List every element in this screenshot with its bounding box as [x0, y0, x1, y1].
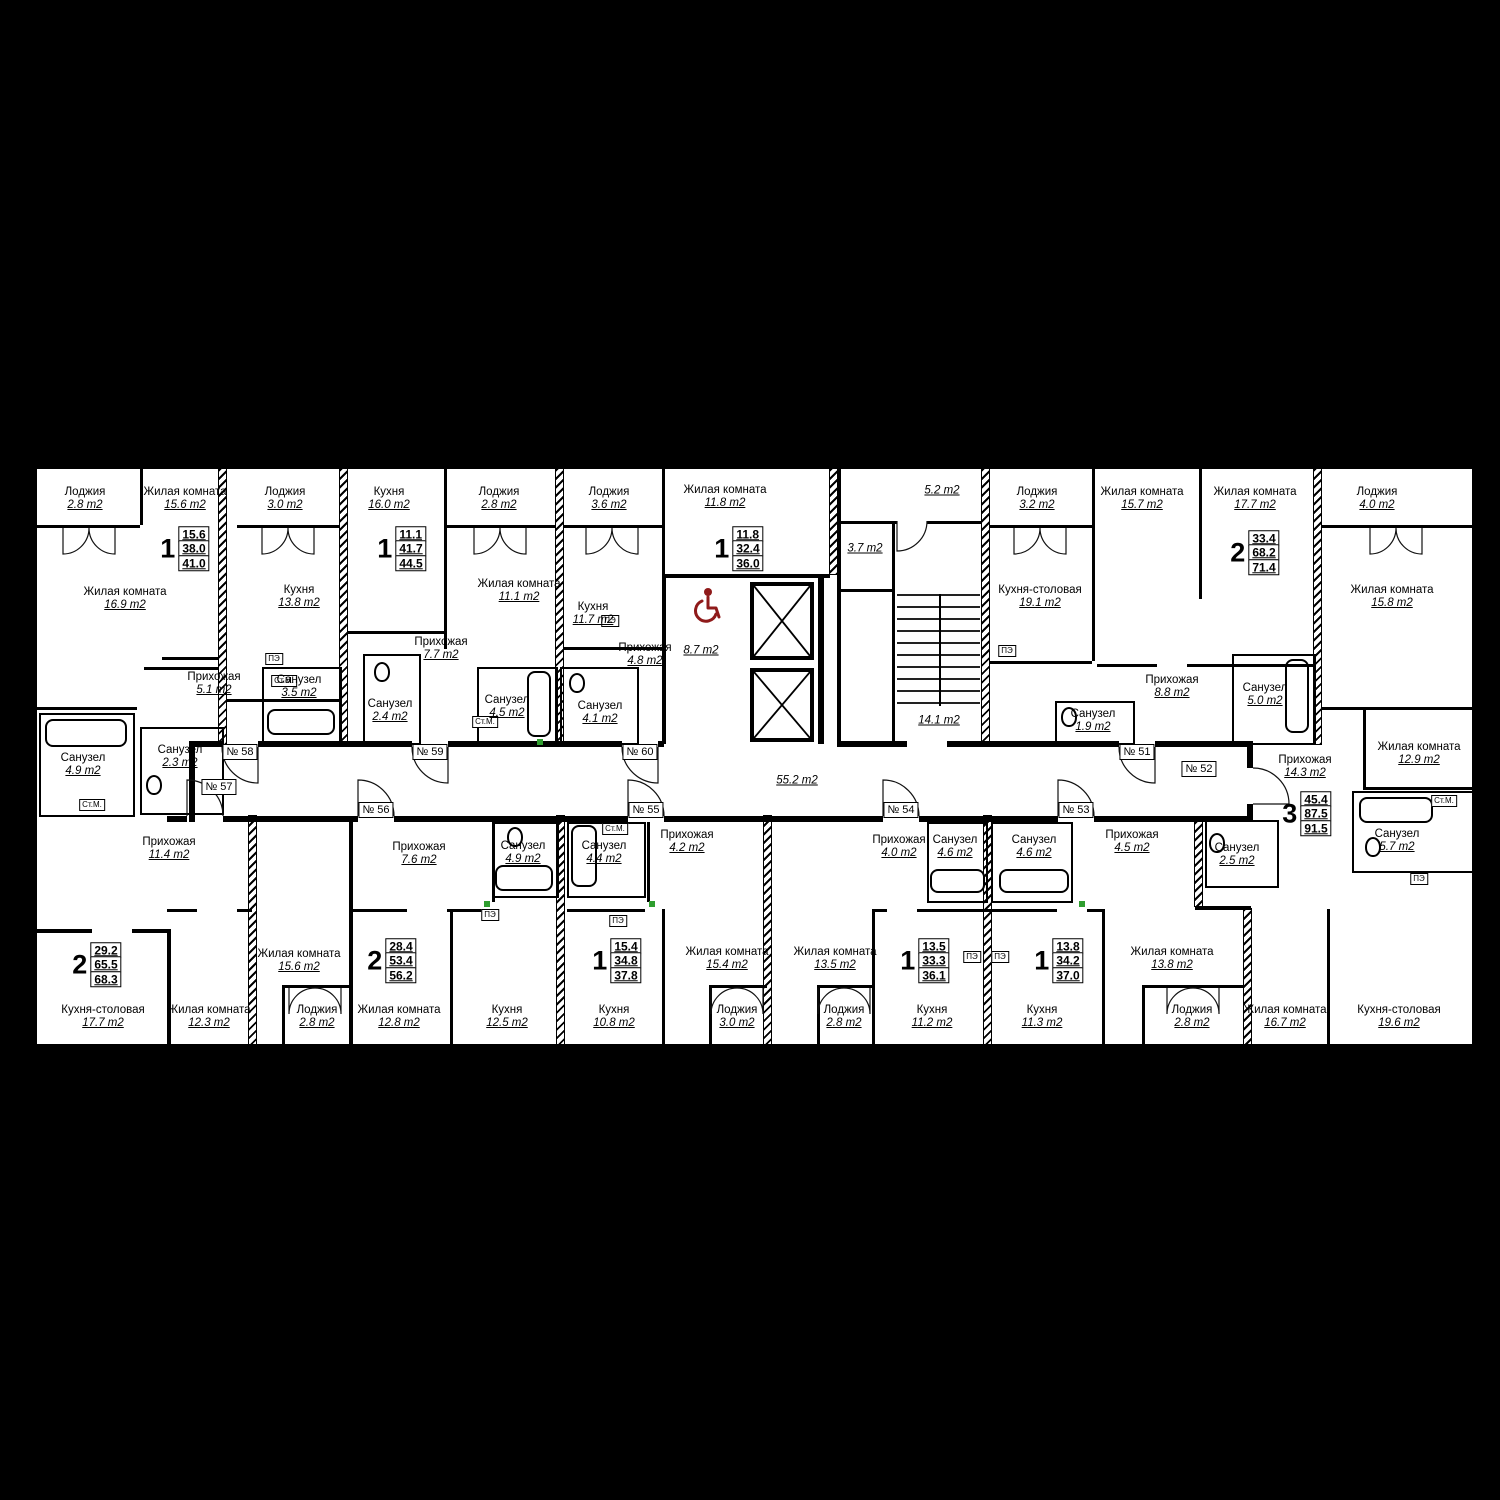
apartment-info: 113.533.336.1: [900, 939, 949, 983]
room-label: Жилая комната17.7 m2: [1213, 486, 1296, 512]
stove-label: ПЭ: [1410, 873, 1428, 885]
room-label: Жилая комната13.8 m2: [1130, 946, 1213, 972]
vestibule-area-label: 5.2 m2: [924, 485, 959, 498]
room-label: Лоджия3.6 m2: [589, 486, 630, 512]
wheelchair-lobby-area-label: 8.7 m2: [683, 645, 718, 658]
stove-label: ПЭ: [991, 951, 1009, 963]
room-label: Санузел4.6 m2: [1012, 834, 1057, 860]
stove-label: ПЭ: [265, 653, 283, 665]
room-label: Прихожая8.8 m2: [1145, 674, 1198, 700]
room-label: Санузел4.1 m2: [578, 700, 623, 726]
balcony-rail: [300, 1056, 482, 1069]
apartment-tag: № 54: [883, 802, 918, 818]
balcony-rail: [944, 1056, 1152, 1069]
balcony-rail: [348, 447, 420, 460]
room-label: Прихожая4.8 m2: [618, 642, 671, 668]
room-label: Санузел5.7 m2: [1375, 828, 1420, 854]
balcony-rail: [1190, 1056, 1460, 1069]
room-label: Лоджия2.8 m2: [479, 486, 520, 512]
balcony-rail: [692, 447, 768, 460]
apartment-tag: № 59: [412, 744, 447, 760]
stairwell-area-label: 14.1 m2: [918, 715, 960, 728]
apartment-tag: № 56: [358, 802, 393, 818]
room-label: Кухня11.3 m2: [1022, 1004, 1063, 1030]
apartment-info: 113.834.237.0: [1034, 939, 1083, 983]
room-label: Лоджия2.8 m2: [1172, 1004, 1213, 1030]
vent-mark: [1079, 901, 1085, 907]
balcony-rail: [1318, 447, 1392, 460]
room-label: Прихожая7.6 m2: [392, 841, 445, 867]
room-label: Прихожая5.1 m2: [187, 671, 240, 697]
room-label: Санузел2.5 m2: [1215, 842, 1260, 868]
room-label: Жилая комната15.8 m2: [1350, 584, 1433, 610]
room-label: Жилая комната15.7 m2: [1100, 486, 1183, 512]
room-label: Санузел4.5 m2: [485, 694, 530, 720]
apartment-info: 115.434.837.8: [592, 939, 641, 983]
room-label: Санузел2.3 m2: [158, 744, 203, 770]
balcony-rail: [612, 1056, 822, 1069]
room-label: Лоджия2.8 m2: [65, 486, 106, 512]
wheelchair-icon: [689, 587, 721, 623]
room-label: Прихожая14.3 m2: [1278, 754, 1331, 780]
room-label: Санузел2.4 m2: [368, 698, 413, 724]
page: { "colors": {"wall": "#000000", "paper":…: [0, 0, 1500, 1500]
apartment-info: 233.468.271.4: [1230, 531, 1279, 575]
room-label: Лоджия2.8 m2: [824, 1004, 865, 1030]
room-label: Кухня11.2 m2: [912, 1004, 953, 1030]
apartment-info: 111.832.436.0: [714, 527, 763, 571]
vent-mark: [649, 901, 655, 907]
apartment-info: 345.487.591.5: [1282, 792, 1331, 836]
room-label: Кухня-столовая19.1 m2: [998, 584, 1081, 610]
room-label: Санузел3.5 m2: [277, 674, 322, 700]
room-label: Лоджия3.0 m2: [265, 486, 306, 512]
room-label: Прихожая11.4 m2: [142, 836, 195, 862]
balcony-rail: [778, 447, 828, 460]
washer-label: Ст.М.: [602, 823, 628, 835]
washer-label: Ст.М.: [1431, 795, 1457, 807]
room-label: Лоджия4.0 m2: [1357, 486, 1398, 512]
room-label: Жилая комната13.5 m2: [793, 946, 876, 972]
apartment-tag: № 52: [1181, 761, 1216, 777]
room-label: Санузел4.9 m2: [501, 840, 546, 866]
room-label: Лоджия2.8 m2: [297, 1004, 338, 1030]
stove-label: ПЭ: [481, 909, 499, 921]
room-label: Кухня10.8 m2: [593, 1004, 635, 1030]
room-label: Жилая комната16.9 m2: [83, 586, 166, 612]
apartment-tag: № 55: [628, 802, 663, 818]
room-label: Жилая комната15.6 m2: [257, 948, 340, 974]
room-label: Прихожая4.5 m2: [1105, 829, 1158, 855]
stove-label: ПЭ: [963, 951, 981, 963]
corridor-area-label: 55.2 m2: [776, 775, 818, 788]
room-label: Прихожая4.2 m2: [660, 829, 713, 855]
room-label: Кухня16.0 m2: [368, 486, 410, 512]
room-label: Лоджия3.2 m2: [1017, 486, 1058, 512]
room-label: Санузел4.9 m2: [61, 752, 106, 778]
floor-plan: Лоджия2.8 m2 Жилая комната16.9 m2 Жилая …: [30, 462, 1479, 1051]
apartment-tag: № 53: [1058, 802, 1093, 818]
balcony-rail: [58, 1056, 262, 1069]
room-label: Санузел4.4 m2: [582, 840, 627, 866]
apartment-tag: № 57: [201, 779, 236, 795]
vent-mark: [484, 901, 490, 907]
apartment-info: 115.638.041.0: [160, 527, 209, 571]
lobby-area-label: 3.7 m2: [847, 543, 882, 556]
room-label: Жилая комната16.7 m2: [1243, 1004, 1326, 1030]
balcony-rail: [1120, 447, 1192, 460]
balcony-rail: [443, 447, 518, 460]
room-label: Жилая комната15.4 m2: [685, 946, 768, 972]
room-label: Кухня-столовая19.6 m2: [1357, 1004, 1440, 1030]
room-label: Санузел5.0 m2: [1243, 682, 1288, 708]
room-label: Жилая комната12.9 m2: [1377, 741, 1460, 767]
room-label: Жилая комната12.8 m2: [357, 1004, 440, 1030]
room-label: Кухня13.8 m2: [278, 584, 320, 610]
balcony-rail: [58, 447, 128, 460]
room-label: Кухня12.5 m2: [486, 1004, 528, 1030]
balcony-rail: [143, 447, 223, 460]
apartment-info: 229.265.568.3: [72, 943, 121, 987]
room-label: Жилая комната12.3 m2: [167, 1004, 250, 1030]
room-label: Жилая комната11.8 m2: [683, 484, 766, 510]
room-label: Жилая комната15.6 m2: [143, 486, 226, 512]
apartment-tag: № 51: [1119, 744, 1154, 760]
apartment-info: 228.453.456.2: [367, 939, 416, 983]
stove-label: ПЭ: [998, 645, 1016, 657]
balcony-rail: [553, 447, 638, 460]
balcony-rail: [1402, 447, 1458, 460]
room-label: Прихожая4.0 m2: [872, 834, 925, 860]
room-label: Лоджия3.0 m2: [717, 1004, 758, 1030]
apartment-tag: № 60: [622, 744, 657, 760]
room-label: Прихожая7.7 m2: [414, 636, 467, 662]
room-label: Жилая комната11.1 m2: [477, 578, 560, 604]
room-label: Кухня-столовая17.7 m2: [61, 1004, 144, 1030]
apartment-info: 111.141.744.5: [377, 527, 426, 571]
room-label: Кухня11.7 m2: [573, 601, 614, 627]
apartment-tag: № 58: [222, 744, 257, 760]
vent-mark: [537, 739, 543, 745]
balcony-rail: [998, 447, 1078, 460]
balcony-rail: [237, 447, 303, 460]
balcony-rail: [1228, 447, 1298, 460]
washer-label: Ст.М.: [79, 799, 105, 811]
room-label: Санузел1.9 m2: [1071, 708, 1116, 734]
stove-label: ПЭ: [609, 915, 627, 927]
room-label: Санузел4.6 m2: [933, 834, 978, 860]
